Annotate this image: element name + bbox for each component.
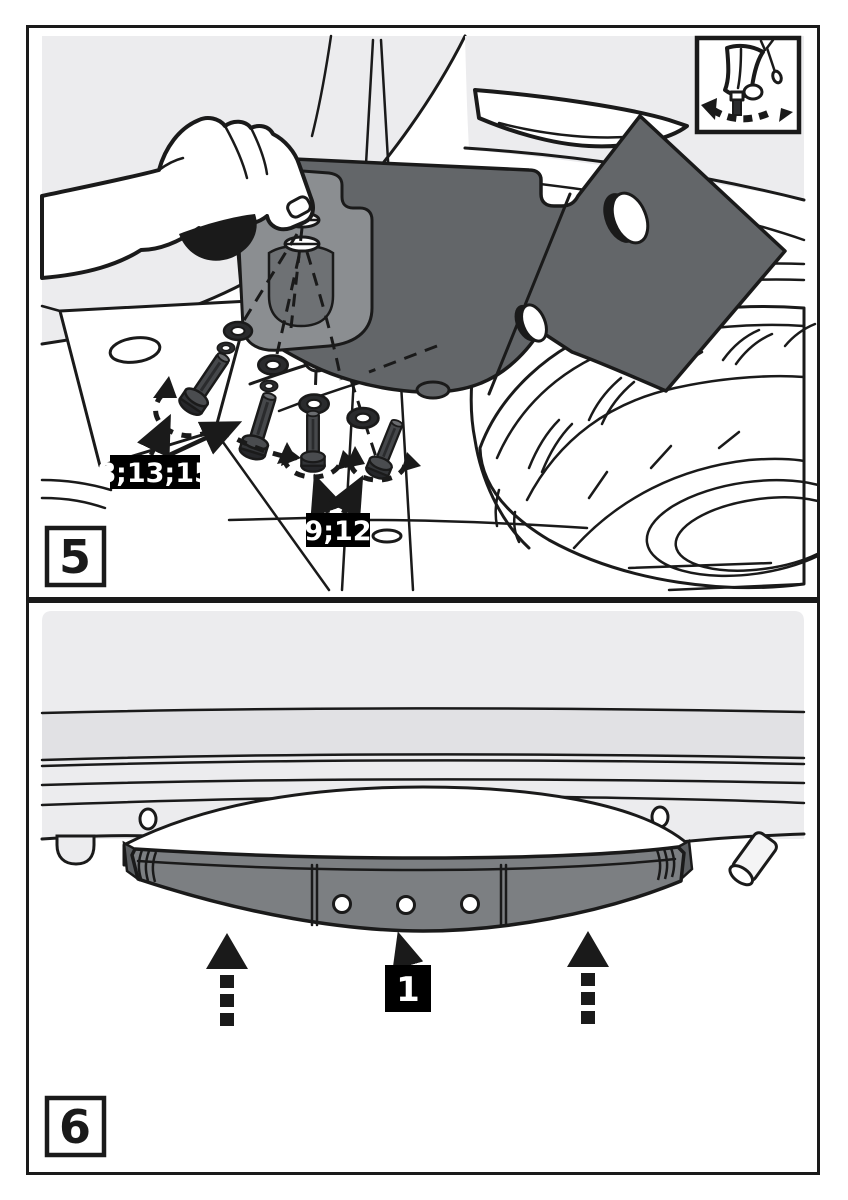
floor-oval-hole (373, 530, 401, 542)
step5-illustration: 8;13;15 9;12 (29, 28, 817, 597)
mounting-arrow-left (206, 933, 248, 1026)
washer (348, 408, 379, 428)
bolt-3 (301, 411, 324, 472)
step6-illustration: 1 6 (29, 603, 817, 1172)
hand-tighten-inset (697, 38, 799, 132)
crossbar-hole (334, 896, 351, 913)
panel-step-6: 1 6 (26, 600, 820, 1175)
instruction-page: 8;13;15 9;12 (0, 0, 848, 1200)
crossbar-hole (398, 897, 415, 914)
step-number-box-6: 6 (47, 1098, 104, 1155)
bracket-weld-nut (417, 382, 449, 398)
step-number-6: 6 (59, 1100, 91, 1154)
callout-crossbar-label: 1 (396, 970, 420, 1010)
callout-side-bolts-label: 8;13;15 (97, 458, 213, 489)
step-number-5: 5 (59, 530, 91, 584)
step-number-box-5: 5 (47, 528, 104, 585)
callout-crossbar: 1 (385, 939, 431, 1012)
mounting-arrow-right (567, 931, 609, 1024)
callout-bottom-bolts: 9;12 (304, 482, 371, 547)
washer (224, 322, 252, 340)
washer (258, 356, 287, 375)
crossbar-hole (462, 896, 479, 913)
panel-step-5: 8;13;15 9;12 (26, 25, 820, 600)
bumper-tab (57, 836, 94, 864)
bumper-sensor-hole-left (140, 809, 156, 829)
washer-small (217, 342, 234, 353)
washer-small (260, 380, 277, 391)
callout-bottom-bolts-label: 9;12 (304, 516, 371, 547)
